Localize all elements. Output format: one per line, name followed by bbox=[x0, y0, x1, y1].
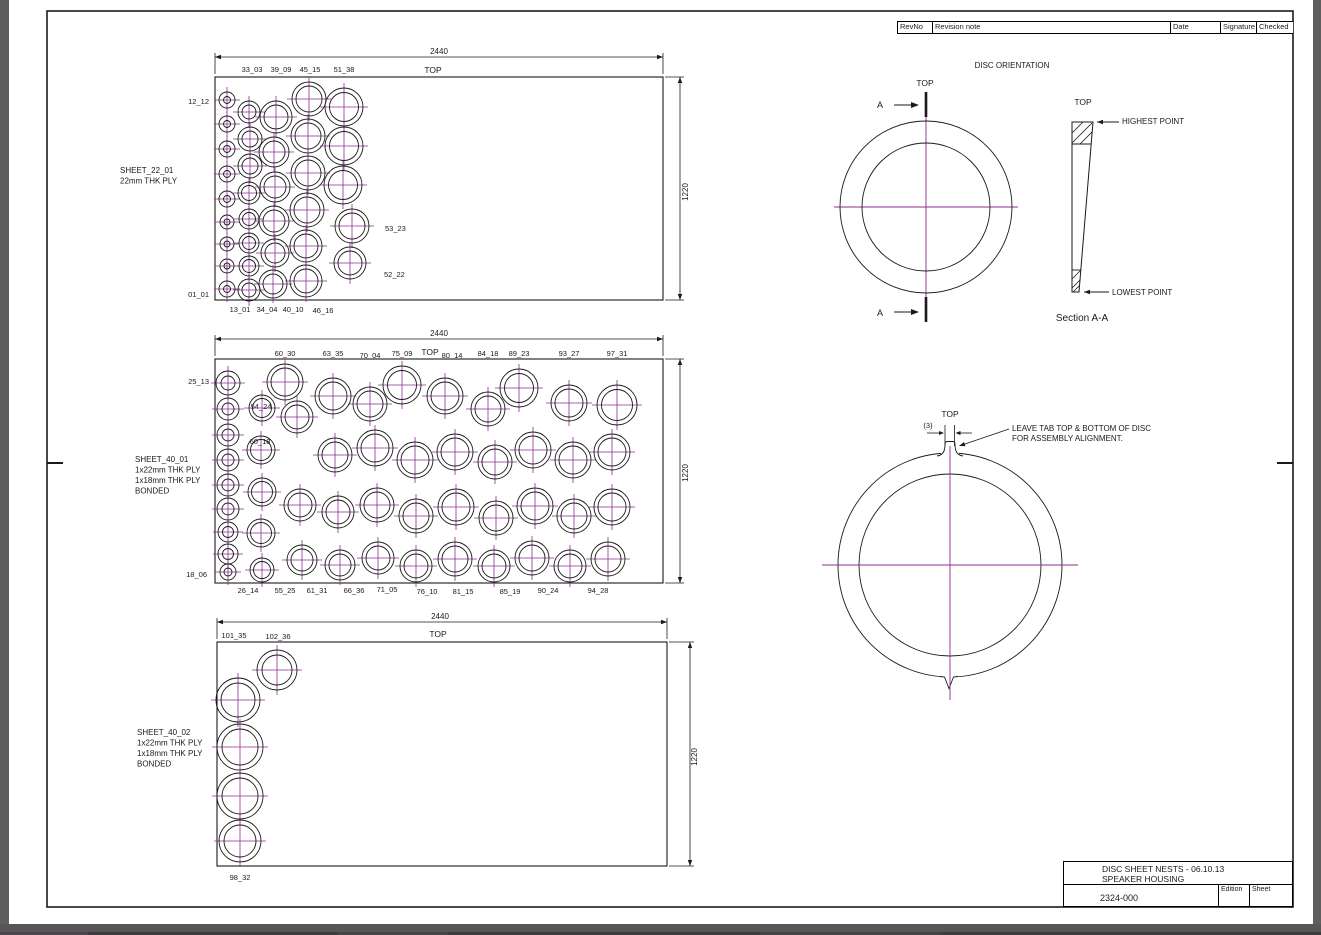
part-label: 52_22 bbox=[384, 270, 405, 279]
dim-height: 1220 bbox=[690, 748, 699, 766]
arrowhead bbox=[688, 860, 692, 866]
dim-width: 2440 bbox=[430, 47, 448, 56]
part-label: 12_12 bbox=[188, 97, 209, 106]
hatch-line bbox=[1072, 122, 1083, 133]
part-label: 93_27 bbox=[559, 349, 580, 358]
part-label: 71_05 bbox=[377, 585, 398, 594]
drawing-title-line1: DISC SHEET NESTS - 06.10.13 bbox=[1102, 864, 1292, 874]
dim-width: 2440 bbox=[431, 612, 449, 621]
sheet-note-line: SHEET_40_02 bbox=[137, 728, 191, 737]
sheet-40-02-outline bbox=[217, 642, 667, 866]
part-label: 89_23 bbox=[509, 349, 530, 358]
sheet-note-line: 1x18mm THK PLY bbox=[135, 476, 201, 485]
part-label: 97_31 bbox=[607, 349, 628, 358]
sheet-40-01-outline bbox=[215, 359, 663, 583]
window-edge-right bbox=[1313, 0, 1321, 935]
leader-line bbox=[962, 429, 1009, 445]
part-label: 98_32 bbox=[230, 873, 251, 882]
part-label: 01_01 bbox=[188, 290, 209, 299]
part-label: 34_04 bbox=[257, 305, 278, 314]
rev-col-date: Date bbox=[1170, 22, 1220, 33]
drawing-title-line2: SPEAKER HOUSING bbox=[1102, 874, 1292, 884]
dim-arrowhead bbox=[939, 431, 944, 435]
part-label: 45_15 bbox=[300, 65, 321, 74]
dim-width: 2440 bbox=[430, 329, 448, 338]
part-label: 66_36 bbox=[344, 586, 365, 595]
disc-orientation-title: DISC ORIENTATION bbox=[975, 61, 1050, 70]
dim-height: 1220 bbox=[681, 464, 690, 482]
leader-arrowhead bbox=[1097, 120, 1103, 124]
arrowhead bbox=[678, 294, 682, 300]
arrowhead bbox=[678, 77, 682, 83]
rev-col-checked: Checked bbox=[1256, 22, 1293, 33]
section-top-marking: TOP bbox=[1074, 97, 1092, 107]
sheet-note-line: 1x22mm THK PLY bbox=[137, 739, 203, 748]
highest-point-note: HIGHEST POINT bbox=[1122, 117, 1184, 126]
edition-label: Edition bbox=[1218, 885, 1249, 906]
dim-height: 1220 bbox=[681, 183, 690, 201]
part-label: 70_04 bbox=[360, 351, 381, 360]
arrowhead bbox=[217, 620, 223, 624]
arrowhead bbox=[661, 620, 667, 624]
part-label: 25_13 bbox=[188, 377, 209, 386]
part-label: 51_38 bbox=[334, 65, 355, 74]
sheet-note-line: 22mm THK PLY bbox=[120, 177, 178, 186]
top-marking: TOP bbox=[424, 65, 442, 75]
tab-note-line1: LEAVE TAB TOP & BOTTOM OF DISC bbox=[1012, 424, 1151, 433]
sheet-note-line: BONDED bbox=[135, 487, 169, 496]
part-label: 39_09 bbox=[271, 65, 292, 74]
part-label: 76_10 bbox=[417, 587, 438, 596]
top-marking: TOP bbox=[429, 629, 447, 639]
part-label: 55_25 bbox=[275, 586, 296, 595]
part-label: 63_35 bbox=[323, 349, 344, 358]
drawing-number: 2324-000 bbox=[1064, 885, 1218, 906]
arrowhead bbox=[688, 642, 692, 648]
top-marking: TOP bbox=[421, 347, 439, 357]
sheet-note-line: 1x18mm THK PLY bbox=[137, 749, 203, 758]
title-block: DISC SHEET NESTS - 06.10.13 SPEAKER HOUS… bbox=[1063, 861, 1293, 907]
window-edge-left bbox=[0, 0, 9, 935]
part-label: 81_15 bbox=[453, 587, 474, 596]
part-label: 102_36 bbox=[265, 632, 290, 641]
hatch-line bbox=[1072, 123, 1092, 143]
part-label: 94_28 bbox=[588, 586, 609, 595]
part-label: 26_14 bbox=[238, 586, 259, 595]
sheet-note-line: 1x22mm THK PLY bbox=[135, 466, 201, 475]
arrowhead bbox=[657, 337, 663, 341]
section-profile bbox=[1072, 122, 1093, 292]
part-label: 80_14 bbox=[442, 351, 463, 360]
arrowhead bbox=[678, 359, 682, 365]
rev-col-note: Revision note bbox=[932, 22, 1170, 33]
arrowhead bbox=[678, 577, 682, 583]
part-label: 13_01 bbox=[230, 305, 251, 314]
window-edge-bottom bbox=[0, 924, 1321, 932]
sheet-label: Sheet bbox=[1249, 885, 1292, 906]
leader-arrowhead bbox=[959, 442, 965, 446]
sheet-22-01-outline bbox=[215, 77, 663, 300]
dim-arrowhead bbox=[956, 431, 961, 435]
rev-col-signature: Signature bbox=[1220, 22, 1256, 33]
section-letter-a-top: A bbox=[877, 100, 883, 110]
revision-table: RevNo Revision note Date Signature Check… bbox=[897, 21, 1293, 34]
part-label: 84_18 bbox=[478, 349, 499, 358]
part-label: 18_06 bbox=[186, 570, 207, 579]
part-label: 85_19 bbox=[500, 587, 521, 596]
part-label: 60_30 bbox=[275, 349, 296, 358]
part-label: 40_10 bbox=[283, 305, 304, 314]
part-label: 33_03 bbox=[242, 65, 263, 74]
part-label: 46_16 bbox=[313, 306, 334, 315]
tab-top-marking: TOP bbox=[941, 409, 959, 419]
tab-note-line2: FOR ASSEMBLY ALIGNMENT. bbox=[1012, 434, 1123, 443]
orient-top-marking: TOP bbox=[916, 78, 934, 88]
section-arrowhead bbox=[911, 102, 919, 108]
section-title: Section A-A bbox=[1056, 313, 1109, 324]
arrowhead bbox=[657, 55, 663, 59]
hatch-line bbox=[1072, 270, 1081, 279]
tab-dim: (3) bbox=[923, 421, 933, 430]
lowest-point-note: LOWEST POINT bbox=[1112, 288, 1172, 297]
part-label: 53_23 bbox=[385, 224, 406, 233]
part-label: 61_31 bbox=[307, 586, 328, 595]
part-label: 90_24 bbox=[538, 586, 559, 595]
sheet-note-line: SHEET_40_01 bbox=[135, 455, 189, 464]
sheet-note-line: SHEET_22_01 bbox=[120, 166, 174, 175]
cad-drawing: 24401220TOP33_0339_0945_1551_3812_1201_0… bbox=[0, 0, 1321, 935]
part-label: 75_09 bbox=[392, 349, 413, 358]
arrowhead bbox=[215, 55, 221, 59]
leader-arrowhead bbox=[1084, 290, 1090, 294]
part-label: 101_35 bbox=[221, 631, 246, 640]
rev-col-revno: RevNo bbox=[897, 22, 932, 33]
section-arrowhead bbox=[911, 309, 919, 315]
arrowhead bbox=[215, 337, 221, 341]
sheet-note-line: BONDED bbox=[137, 760, 171, 769]
section-letter-a-bottom: A bbox=[877, 308, 883, 318]
